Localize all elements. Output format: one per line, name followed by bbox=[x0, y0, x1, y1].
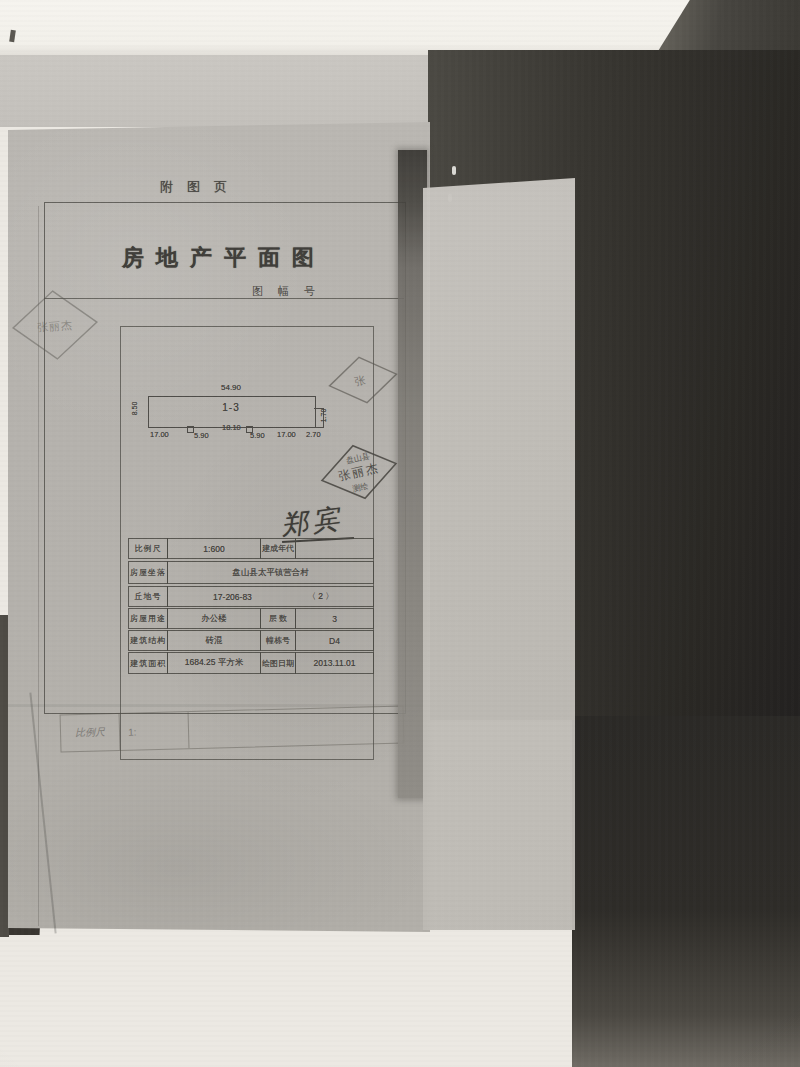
table-row: 房屋坐落 盘山县太平镇营合村 bbox=[128, 561, 374, 584]
table-row: 比例尺 1:600 建成年代 bbox=[128, 538, 374, 559]
plan-top-dimension: 54.90 bbox=[148, 383, 314, 392]
scale-value: 1:600 bbox=[167, 538, 261, 559]
table-row: 丘地号 17-206-83 〈 2 〉 bbox=[128, 586, 374, 607]
structure-label: 建筑结构 bbox=[128, 630, 168, 651]
scale-label: 比例尺 bbox=[128, 538, 168, 559]
attachment-page-label: 附图页 bbox=[160, 178, 241, 196]
plan-bottom-dimension: 5.90 bbox=[250, 431, 265, 440]
plan-left-dimension: 8.50 bbox=[131, 402, 138, 416]
overlay-sheet bbox=[423, 178, 575, 930]
parcel-no-label: 丘地号 bbox=[128, 586, 168, 607]
sheet-number-label: 图 幅 号 bbox=[252, 284, 321, 299]
parcel-no-value: 17-206-83 bbox=[213, 592, 252, 602]
table-row: 建筑结构 砖混 幢栋号 D4 bbox=[128, 630, 374, 651]
block-no-value: D4 bbox=[295, 630, 374, 651]
usage-label: 房屋用途 bbox=[128, 608, 168, 629]
address-value: 盘山县太平镇营合村 bbox=[167, 561, 374, 584]
binding-shadow-strip bbox=[398, 150, 427, 798]
svg-text:张丽杰: 张丽杰 bbox=[37, 319, 74, 333]
build-year-value bbox=[295, 538, 374, 559]
dark-folder-bottom-right bbox=[572, 716, 800, 1067]
usage-value: 办公楼 bbox=[167, 608, 261, 629]
structure-value: 砖混 bbox=[167, 630, 261, 651]
parcel-no-cell: 17-206-83 〈 2 〉 bbox=[167, 586, 374, 607]
dark-edge-left bbox=[0, 615, 9, 937]
draw-date-label: 绘图日期 bbox=[260, 652, 296, 674]
plan-bottom-dimension: 18.10 bbox=[222, 423, 241, 432]
floors-label: 层 数 bbox=[260, 608, 296, 629]
block-no-label: 幢栋号 bbox=[260, 630, 296, 651]
parcel-no-suffix: 〈 2 〉 bbox=[307, 591, 333, 603]
lower-scale-label: 比例尺 bbox=[61, 714, 121, 752]
document-title: 房地产平面图 bbox=[44, 243, 404, 273]
background-shadow-band bbox=[0, 55, 445, 127]
plan-bottom-dimension: 17.00 bbox=[150, 430, 169, 439]
area-value: 1684.25 平方米 bbox=[167, 652, 261, 674]
ghost-diamond-seal-left: 张丽杰 bbox=[10, 287, 101, 363]
scanned-document-photo: 附图页 房地产平面图 图 幅 号 54.90 1-3 8.50 1.70 17.… bbox=[0, 0, 800, 1067]
table-row: 房屋用途 办公楼 层 数 3 bbox=[128, 608, 374, 629]
build-year-label: 建成年代 bbox=[260, 538, 296, 559]
area-label: 建筑面积 bbox=[128, 652, 168, 674]
address-label: 房屋坐落 bbox=[128, 561, 168, 584]
building-unit-label: 1-3 bbox=[148, 402, 314, 413]
lower-scale-value: 1: bbox=[120, 712, 190, 750]
plan-bottom-dimension: 5.90 bbox=[194, 431, 209, 440]
svg-text:测绘: 测绘 bbox=[352, 481, 370, 493]
header-rule bbox=[44, 298, 404, 299]
plan-right-dimension: 1.70 bbox=[320, 409, 327, 423]
plan-bottom-dimension: 2.70 bbox=[306, 430, 321, 439]
draw-date-value: 2013.11.01 bbox=[295, 652, 374, 674]
table-row: 建筑面积 1684.25 平方米 绘图日期 2013.11.01 bbox=[128, 652, 374, 674]
svg-text:张丽杰: 张丽杰 bbox=[337, 460, 381, 483]
floors-value: 3 bbox=[295, 608, 374, 629]
plan-bottom-dimension: 17.00 bbox=[277, 430, 296, 439]
scan-speck bbox=[452, 166, 456, 175]
svg-text:张: 张 bbox=[354, 374, 367, 388]
door-mark bbox=[187, 426, 194, 433]
